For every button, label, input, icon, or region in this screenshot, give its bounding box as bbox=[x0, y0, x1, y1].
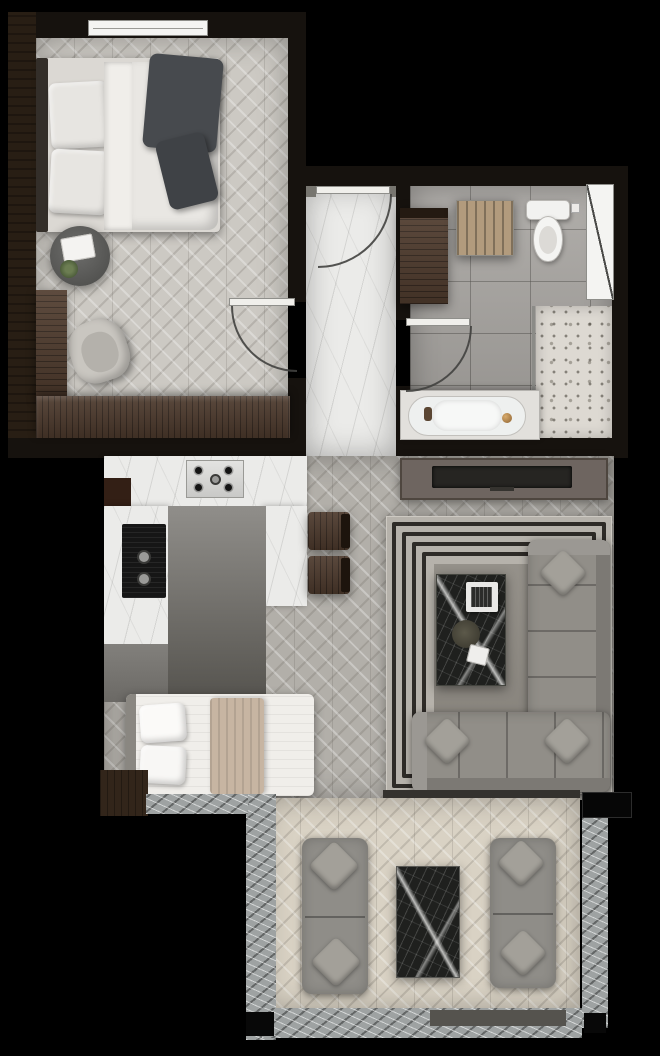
balcony-table bbox=[396, 866, 460, 978]
bedroom-wall-right-upper bbox=[288, 36, 306, 302]
balcony-pillar bbox=[584, 1013, 606, 1033]
entry-threshold bbox=[306, 186, 316, 197]
oven-knob bbox=[137, 572, 151, 586]
daybed-pillow bbox=[139, 702, 188, 743]
balcony-dark-slab bbox=[430, 1010, 566, 1026]
balcony-border-left bbox=[246, 794, 276, 1040]
bed-pillow bbox=[48, 81, 109, 150]
kitchen-floor-inner bbox=[168, 506, 266, 702]
bathtub-faucet bbox=[502, 413, 512, 423]
potted-plant bbox=[60, 260, 78, 278]
dresser bbox=[36, 396, 290, 438]
kitchen-counter-right bbox=[264, 506, 307, 606]
bathroom-wall-right bbox=[612, 166, 628, 458]
bathroom-cabinet bbox=[400, 208, 448, 304]
wardrobe bbox=[36, 290, 67, 398]
table-plant bbox=[452, 620, 480, 648]
cabinet-top-panel bbox=[400, 208, 448, 218]
burner-icon bbox=[225, 467, 232, 474]
burner-icon bbox=[225, 484, 232, 491]
stool-backrest bbox=[341, 558, 350, 592]
wooden-bath-mat bbox=[456, 200, 514, 256]
balcony-border-arm bbox=[146, 794, 248, 814]
window-mullion bbox=[93, 28, 203, 29]
sofa-armrest bbox=[412, 712, 427, 792]
balcony-pillar bbox=[246, 1012, 274, 1036]
marble-veins bbox=[397, 867, 459, 977]
burner-icon bbox=[195, 484, 202, 491]
bedroom-wall-bottom bbox=[8, 438, 306, 458]
tv-stand bbox=[490, 487, 514, 491]
bar-stool bbox=[308, 512, 350, 550]
bathroom-wall-top bbox=[410, 166, 612, 186]
bathtub-hand-shower bbox=[424, 407, 432, 421]
cooktop-dial bbox=[210, 474, 221, 485]
bathtub-basin-inner bbox=[432, 400, 502, 431]
bedroom-wall-left bbox=[8, 12, 36, 458]
kitchen-wall-block bbox=[104, 478, 131, 506]
bed-pillow bbox=[48, 149, 109, 216]
balcony-pillar bbox=[582, 792, 632, 818]
stool-backrest bbox=[341, 514, 350, 548]
wood-floor-patch bbox=[100, 770, 148, 816]
toilet-bowl-inner bbox=[539, 226, 557, 254]
bathroom-window bbox=[586, 184, 614, 300]
toilet-flush-plate bbox=[571, 203, 580, 213]
bed-headboard bbox=[36, 58, 48, 232]
bar-stool bbox=[308, 556, 350, 594]
balcony-border-right bbox=[582, 818, 608, 1028]
built-in-oven bbox=[122, 524, 166, 598]
tv bbox=[432, 466, 572, 488]
oven-knob bbox=[137, 550, 151, 564]
sofa-armrest bbox=[528, 540, 610, 555]
burner-icon bbox=[195, 467, 202, 474]
entry-door-leaf bbox=[316, 186, 390, 194]
hall-wall-top bbox=[306, 166, 410, 186]
sofa-seam bbox=[305, 916, 365, 918]
serving-tray bbox=[466, 582, 498, 612]
bedroom-window bbox=[88, 20, 208, 36]
tray-contents bbox=[471, 587, 492, 607]
sofa-seam bbox=[493, 913, 553, 915]
window-casement-line bbox=[587, 185, 613, 299]
floor-plan bbox=[0, 0, 660, 1056]
gas-cooktop bbox=[186, 460, 244, 498]
bathroom-door-leaf bbox=[406, 318, 470, 326]
bedroom-door-leaf bbox=[229, 298, 295, 306]
daybed-blanket bbox=[210, 698, 264, 794]
shower-floor bbox=[536, 306, 612, 438]
bathroom-wall-bottom bbox=[396, 438, 628, 458]
